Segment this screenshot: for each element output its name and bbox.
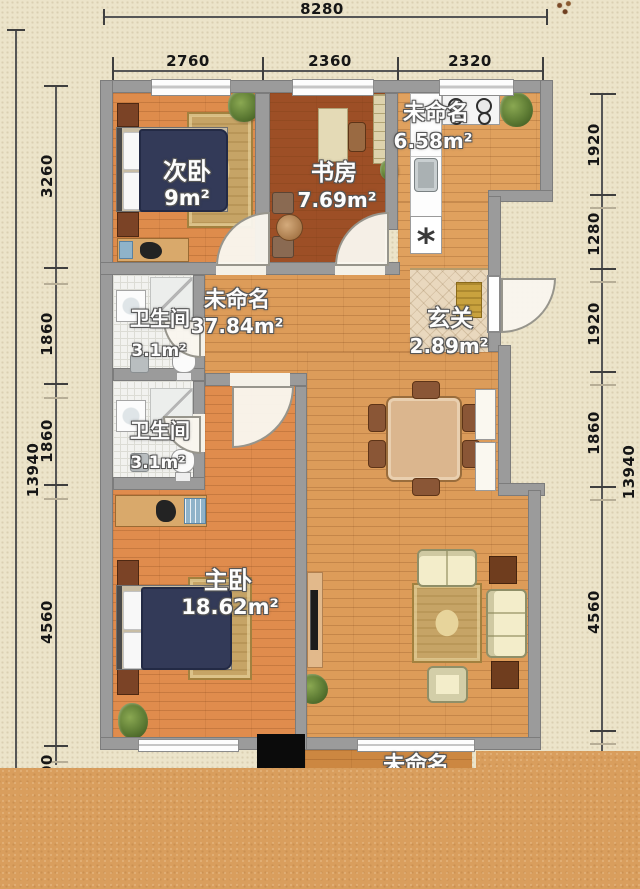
tv	[310, 590, 318, 650]
wall-master-living	[295, 386, 307, 750]
chair-study	[348, 122, 366, 152]
dim-line-left-outer	[15, 30, 17, 770]
entry-door-panel	[487, 275, 501, 333]
wall-panel	[475, 442, 496, 491]
counter-divider	[411, 156, 441, 157]
dim-right-total: 13940	[620, 445, 638, 500]
room-name-study: 书房	[311, 153, 357, 187]
dim-tick	[590, 371, 616, 373]
room-area-entry: 2.89m²	[410, 334, 489, 358]
room-area-study: 7.69m²	[298, 188, 377, 212]
end-table	[489, 556, 517, 584]
bed-headboard	[117, 586, 122, 669]
round-table	[276, 214, 303, 241]
window-kitchen	[439, 79, 514, 96]
floorplan-canvas: 8280 2760 2360 2320 13940 3260 1860 1860…	[0, 0, 640, 889]
chair-black	[156, 500, 176, 522]
dim-tick	[590, 486, 616, 488]
dim-line-top-segments	[113, 70, 543, 72]
dim-left-seg-2: 1860	[38, 312, 56, 356]
nightstand	[117, 103, 139, 127]
window-secondary-bedroom	[151, 79, 231, 96]
dim-tick	[44, 745, 68, 747]
window-study	[292, 79, 374, 96]
dim-left-seg-4: 4560	[38, 600, 56, 644]
dim-tick	[590, 384, 616, 386]
nightstand	[117, 212, 139, 237]
dim-tick	[590, 730, 616, 732]
cutoff-overlay-main	[0, 768, 640, 889]
dim-left-seg-1: 3260	[38, 154, 56, 198]
wall-bath2-bottom	[113, 477, 205, 490]
room-name-bathroom-lower: 卫生间	[130, 415, 190, 444]
dim-tick	[44, 85, 68, 87]
dim-tick	[44, 283, 68, 285]
bed-headboard	[117, 128, 122, 211]
wall-panel	[475, 389, 496, 440]
room-area-bathroom-upper: 3.1m²	[131, 341, 186, 361]
room-area-bathroom-lower: 3.1m²	[130, 453, 185, 473]
kitchen-sink	[414, 158, 438, 192]
dim-tick	[590, 743, 616, 745]
fridge-symbol: *	[417, 222, 436, 263]
dining-chair	[368, 440, 386, 468]
dim-tick	[590, 281, 616, 283]
dining-chair	[412, 381, 440, 399]
dim-top-total: 8280	[300, 0, 344, 18]
room-name-kitchen: 未命名	[403, 95, 469, 127]
nightstand	[117, 560, 139, 588]
toilet-tank	[175, 472, 191, 482]
room-name-secondary-bedroom: 次卧	[163, 152, 211, 187]
sprig-decoration	[553, 0, 575, 18]
dim-tick	[590, 499, 616, 501]
wall-left	[100, 80, 113, 750]
dim-tick	[44, 484, 68, 486]
room-name-entry: 玄关	[427, 299, 473, 333]
end-table	[491, 661, 519, 689]
wall-right-dining	[498, 345, 511, 490]
cabinet-blue	[119, 241, 133, 259]
seat	[272, 192, 294, 214]
wall-right-living	[528, 490, 541, 750]
dim-right-seg-3: 1920	[585, 302, 603, 346]
room-area-secondary-bedroom: 9m²	[164, 186, 210, 210]
dim-tick	[103, 9, 105, 25]
dining-table	[386, 396, 462, 482]
dim-right-seg-4: 1860	[585, 411, 603, 455]
dim-top-seg-3: 2320	[448, 52, 492, 70]
plant	[500, 92, 533, 127]
dim-top-seg-2: 2360	[308, 52, 352, 70]
dim-tick	[590, 268, 616, 270]
room-name-master-bedroom: 主卧	[204, 561, 252, 596]
wall-right-kitchen	[540, 80, 553, 202]
dim-tick	[7, 29, 25, 31]
dim-tick	[44, 397, 68, 399]
stove-burner	[478, 112, 491, 125]
chair-black	[140, 242, 162, 259]
rug-living	[412, 583, 482, 663]
fridge-box: *	[410, 216, 442, 254]
dim-tick	[546, 9, 548, 25]
sofa-two-seat	[417, 549, 477, 587]
window-master-bedroom	[138, 739, 239, 752]
toilet-tank	[176, 372, 192, 381]
room-name-living: 未命名	[204, 282, 270, 314]
black-block	[257, 734, 305, 768]
dim-right-seg-1: 1920	[585, 123, 603, 167]
room-name-bathroom-upper: 卫生间	[130, 303, 190, 332]
room-area-kitchen: 6.58m²	[394, 129, 473, 153]
dim-tick	[590, 207, 616, 209]
dim-left-seg-3: 1860	[38, 419, 56, 463]
armchair	[427, 666, 468, 703]
sofa-three-seat	[486, 589, 527, 658]
dim-tick	[44, 498, 68, 500]
room-area-master-bedroom: 18.62m²	[181, 595, 279, 619]
dim-right-seg-5: 4560	[585, 590, 603, 634]
dim-tick	[590, 194, 616, 196]
nightstand	[117, 667, 139, 695]
wall-study-kitchen	[385, 93, 398, 230]
dining-chair	[412, 478, 440, 496]
cutoff-overlay-right	[476, 751, 640, 769]
dim-tick	[44, 383, 68, 385]
wardrobe-blue	[184, 498, 206, 524]
dim-top-seg-1: 2760	[166, 52, 210, 70]
dim-tick	[44, 267, 68, 269]
room-area-living: 37.84m²	[191, 314, 284, 338]
floor-corridor-lower	[205, 352, 307, 373]
dim-right-seg-2: 1280	[585, 212, 603, 256]
dim-tick	[590, 93, 616, 95]
door-opening-master	[230, 373, 290, 386]
door-arc-entry	[501, 278, 556, 333]
plant	[118, 703, 148, 739]
dining-chair	[368, 404, 386, 432]
